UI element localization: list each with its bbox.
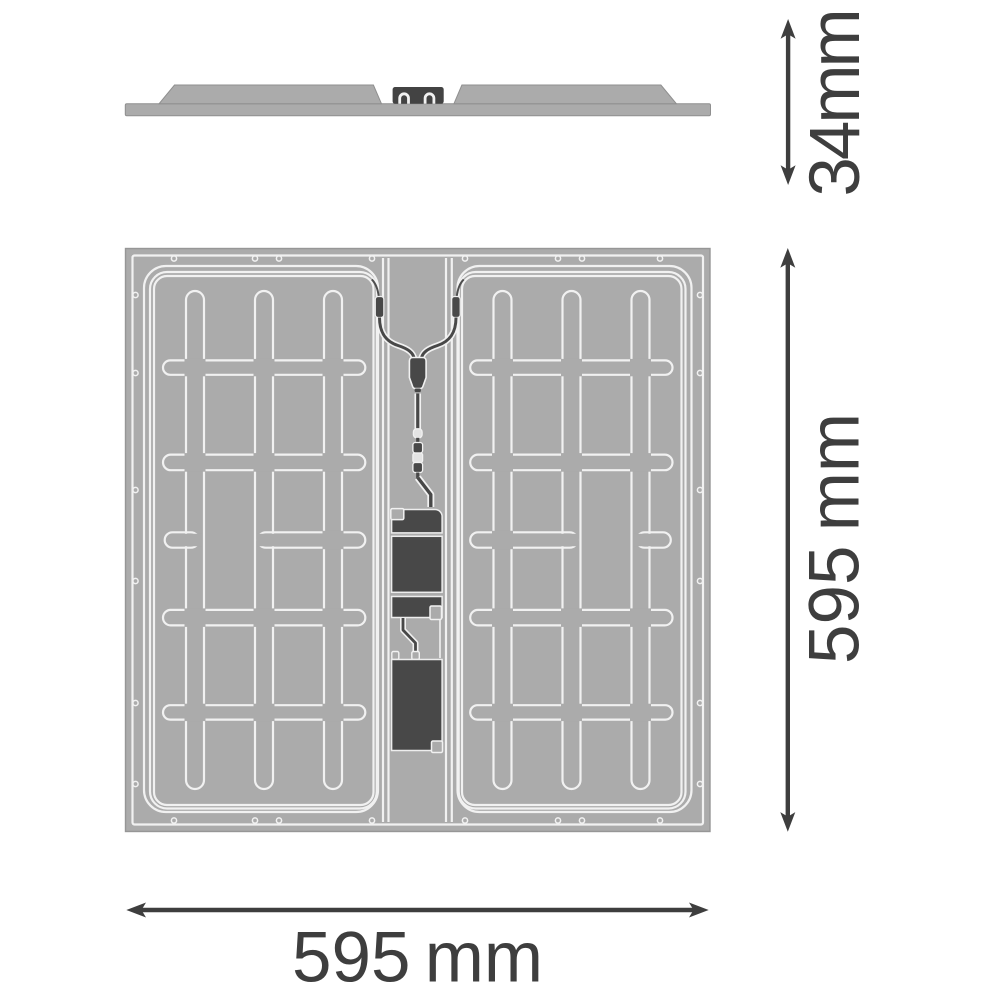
svg-text:595 mm: 595 mm [796, 413, 875, 664]
svg-text:34mm: 34mm [796, 11, 875, 196]
svg-text:595 mm: 595 mm [292, 919, 543, 998]
